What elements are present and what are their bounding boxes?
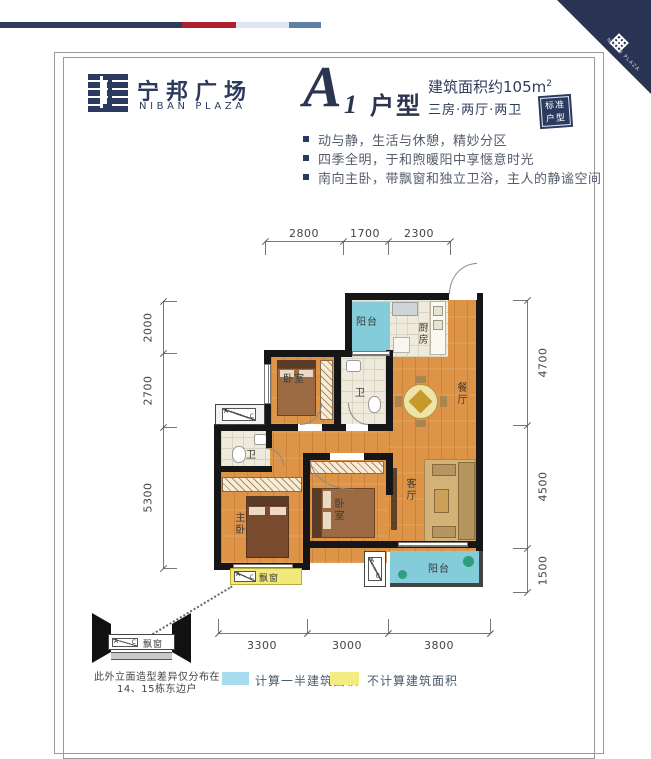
label-kitchen: 厨房 [414,322,429,346]
stripe-red [182,22,236,28]
label-bedroom-top: 卧室 [283,370,305,385]
wardrobe-top-bedroom [320,360,333,420]
dim-ext [163,568,177,569]
unit-area-text: 建筑面积约105m [428,78,546,96]
unit-layout: 三房·两厅·两卫 [428,99,522,118]
dim-bottom-1: 3300 [242,639,282,652]
ac-letter-c: C [250,575,254,581]
balcony-door-window [398,542,468,547]
brand-name-en: NIBAN PLAZA [139,101,246,112]
label-dining: 餐厅 [453,382,468,406]
door-gap [330,453,364,460]
dim-ext [163,301,177,302]
bullet-icon [303,136,309,142]
ac-letter-a: A [370,558,374,564]
dining-chair [415,376,426,383]
pillow [270,507,286,515]
door-gap [298,424,322,431]
dim-line-bottom [218,633,490,634]
wall [476,293,483,551]
detail-sill [111,652,172,660]
bullet-icon [303,174,309,180]
ac-letter-a: A [224,409,228,415]
pillow [249,507,265,515]
wall [345,293,352,357]
plant-icon [463,556,474,567]
dim-ext [343,241,344,255]
window [352,351,390,356]
entry-door-gap [449,293,477,300]
dim-right-3: 1500 [537,551,550,591]
wall [386,350,393,431]
coffee-table [434,489,449,513]
legend-swatch-no-area [330,672,359,685]
flyer-page: { "brand": { "cn": "宁邦广场", "en": "NIBAN … [0,0,651,692]
label-master: 主卧 [231,512,246,536]
unit-suffix: 户型 [370,86,422,121]
highlight-1: 动与静，生活与休憩，精妙分区 [318,130,507,149]
ac-letter-c: C [376,574,380,580]
sofa-seat [432,526,456,538]
wall [214,424,221,570]
ac-symbol: A C [234,571,256,582]
dim-line-left [163,301,164,568]
sink-icon [346,360,361,372]
plant-icon [398,570,407,579]
ac-letter-c: C [250,414,254,420]
detail-bay-window-label: 飘窗 [143,637,163,650]
fridge-icon [393,337,410,353]
unit-area-sup: 2 [546,79,552,89]
highlight-3: 南向主卧，带飘窗和独立卫浴，主人的静谧空间 [318,168,602,187]
sofa-seat [432,464,456,476]
wall [303,453,310,548]
door-gap [346,424,368,431]
wall [334,350,341,431]
highlight-2: 四季全明，于和煦暖阳中享惬意时光 [318,149,534,168]
dining-chair [440,396,447,407]
dim-left-1: 2000 [142,308,155,348]
ac-letter-a: A [236,572,240,578]
label-bath-top: 卫 [355,384,366,399]
dining-chair [415,420,426,427]
stove-icon [433,306,443,316]
legend-swatch-half-area [222,672,249,685]
dim-right-1: 4700 [537,343,550,383]
sofa [458,462,475,540]
unit-letter: A [303,58,342,116]
dim-ext [163,427,177,428]
balcony-rail [479,551,483,587]
dim-top-2: 1700 [345,227,385,240]
toilet-icon [368,396,381,413]
wall [266,424,272,448]
dim-left-3: 5300 [142,478,155,518]
wall [214,466,272,472]
label-balcony-bottom: 阳台 [428,560,450,575]
unit-area: 建筑面积约105m2 [428,76,552,97]
bay-window-label: 飘窗 [259,571,279,584]
stripe-navy [0,22,182,28]
dim-bottom-3: 3800 [419,639,459,652]
dim-bottom-2: 3000 [327,639,367,652]
legend-label-no-area: 不计算建筑面积 [367,672,458,689]
dim-right-2: 4500 [537,467,550,507]
badge-line2: 户型 [542,112,570,127]
bed-headboard [277,360,316,368]
balcony-rail [390,583,483,587]
detail-note-line2: 14、15栋东边户 [72,680,242,695]
ac-symbol: A C [222,408,256,421]
dim-top-3: 2300 [399,227,439,240]
stripe-steel [289,22,321,28]
dim-ext [265,241,266,255]
dining-chair [395,396,402,407]
unit-number: 1 [344,92,357,118]
ac-symbol: A C [112,638,138,647]
label-bedroom-mid: 卧室 [330,498,345,522]
standard-unit-badge: 标准 户型 [538,94,573,129]
dim-ext [163,353,177,354]
label-balcony-top: 阳台 [356,313,378,328]
stripe-pale [236,22,289,28]
wall [386,453,393,495]
standard-unit-badge-text: 标准 户型 [540,96,571,127]
bed-headboard [312,488,321,538]
brand-logo-3shape [103,76,112,108]
bed-headboard [246,496,289,505]
dim-ext [450,241,451,255]
ac-letter-a: A [114,639,118,645]
bullet-icon [303,155,309,161]
label-living: 客厅 [402,478,417,502]
dim-ext [388,241,389,255]
ac-letter-c: C [132,640,136,646]
window [264,364,271,404]
stove-icon [433,320,443,330]
toilet-icon [232,446,246,463]
dim-line-top [265,241,450,242]
label-bath-master: 卫 [246,446,257,461]
dim-top-1: 2800 [284,227,324,240]
wardrobe-master [222,477,302,492]
kitchen-sink [392,302,418,316]
dim-left-2: 2700 [142,371,155,411]
ac-symbol: A C [368,557,382,581]
